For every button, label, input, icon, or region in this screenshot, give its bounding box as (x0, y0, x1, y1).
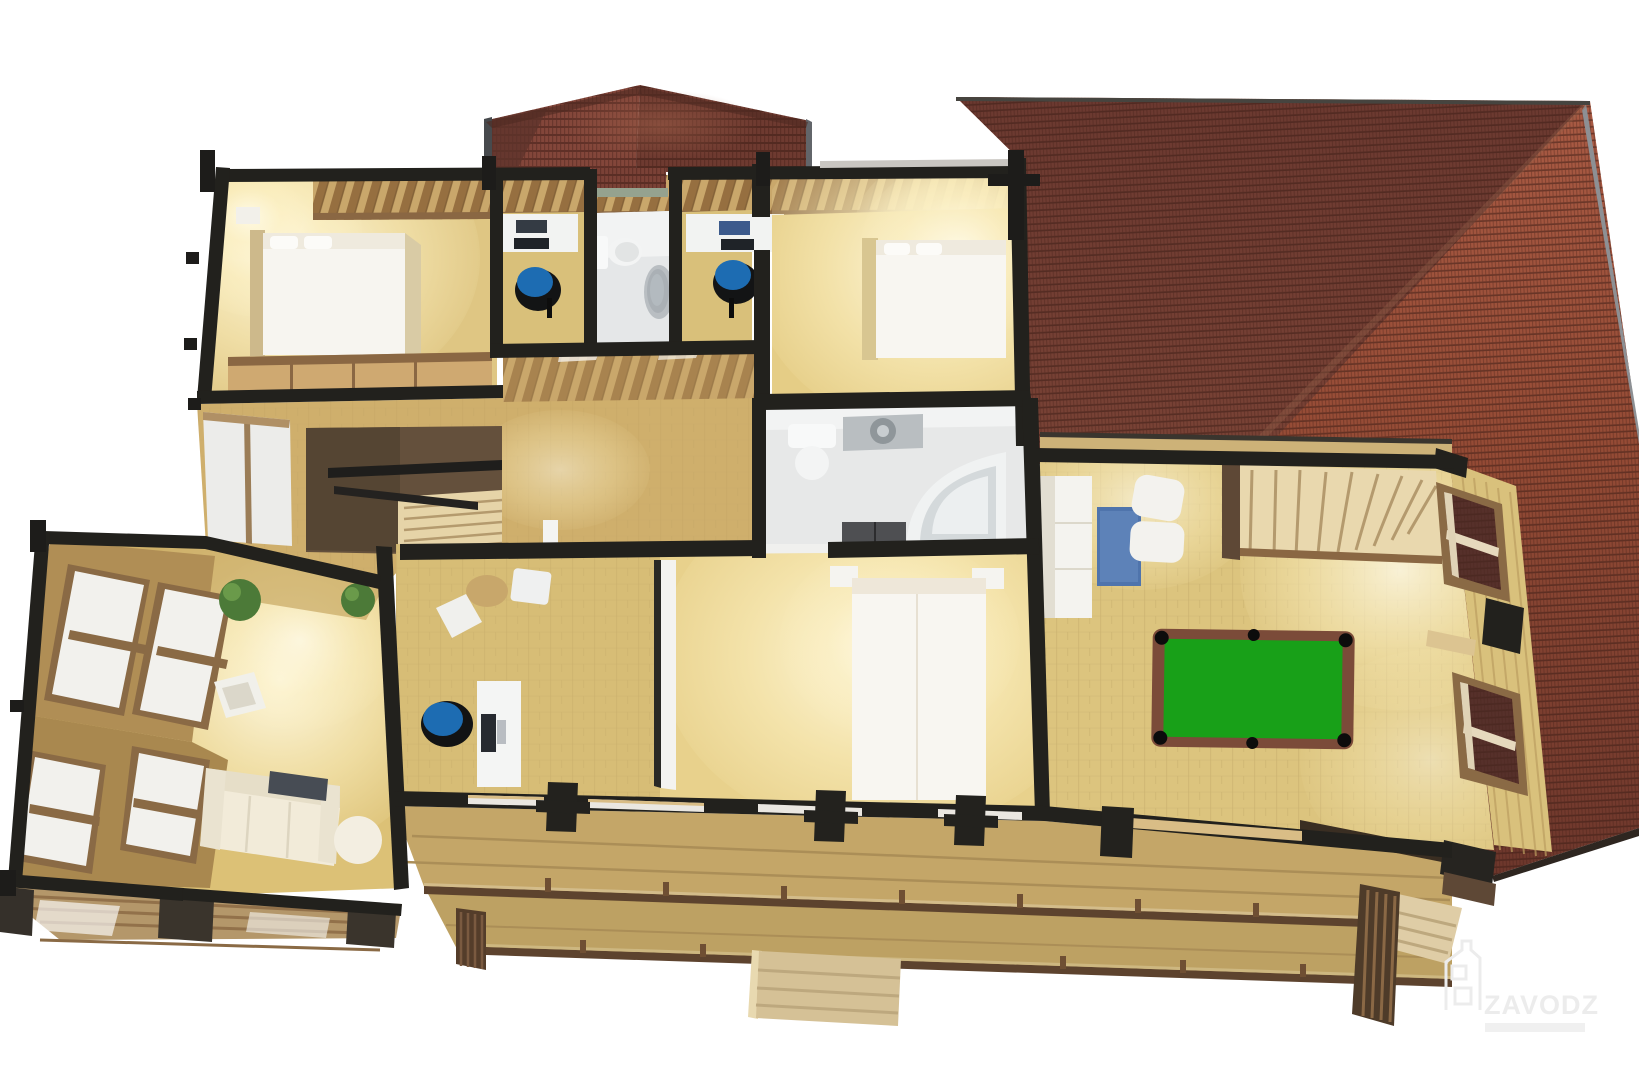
svg-text:ZAVODZ: ZAVODZ (1484, 990, 1599, 1020)
